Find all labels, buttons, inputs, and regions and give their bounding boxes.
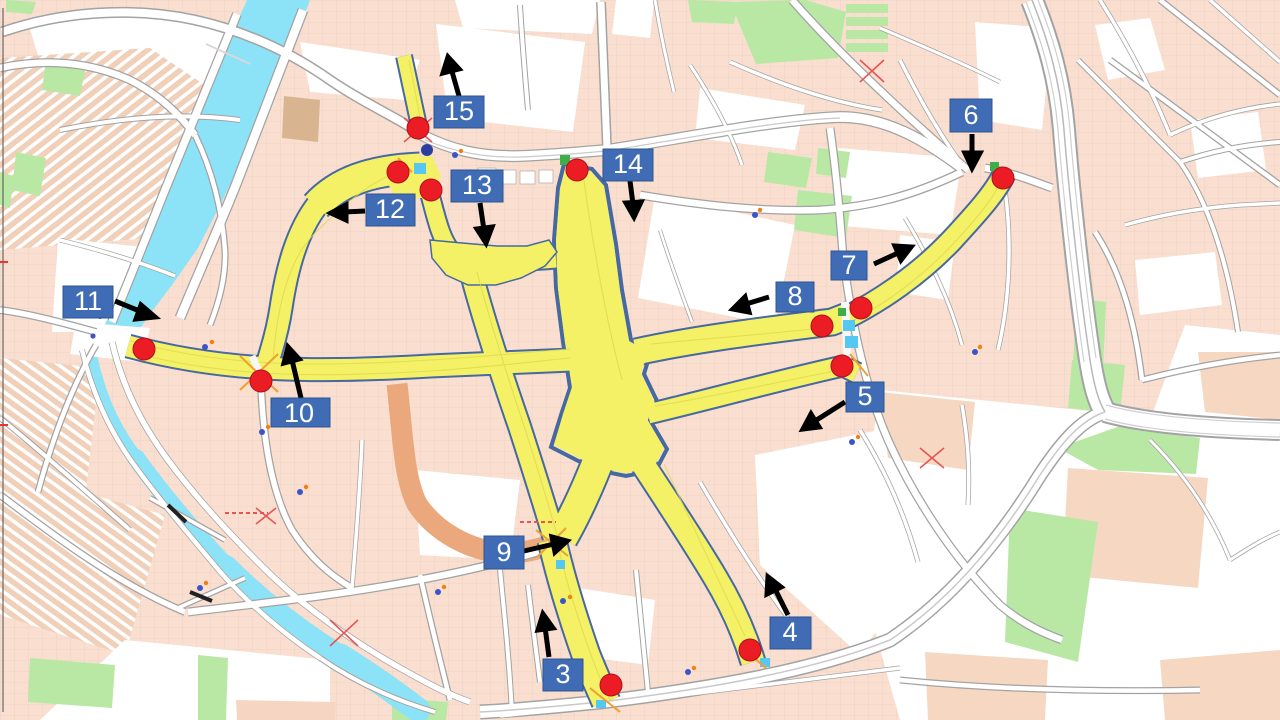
svg-text:6: 6	[963, 100, 978, 130]
svg-text:8: 8	[787, 281, 802, 311]
svg-text:4: 4	[782, 617, 797, 647]
svg-text:5: 5	[857, 381, 872, 411]
svg-text:7: 7	[841, 250, 856, 280]
svg-text:15: 15	[444, 96, 474, 126]
svg-text:3: 3	[555, 659, 570, 689]
svg-text:11: 11	[74, 286, 102, 316]
svg-text:14: 14	[613, 149, 643, 179]
svg-text:9: 9	[496, 537, 511, 567]
svg-text:10: 10	[284, 398, 314, 428]
svg-text:12: 12	[375, 194, 405, 224]
svg-text:13: 13	[462, 170, 492, 200]
